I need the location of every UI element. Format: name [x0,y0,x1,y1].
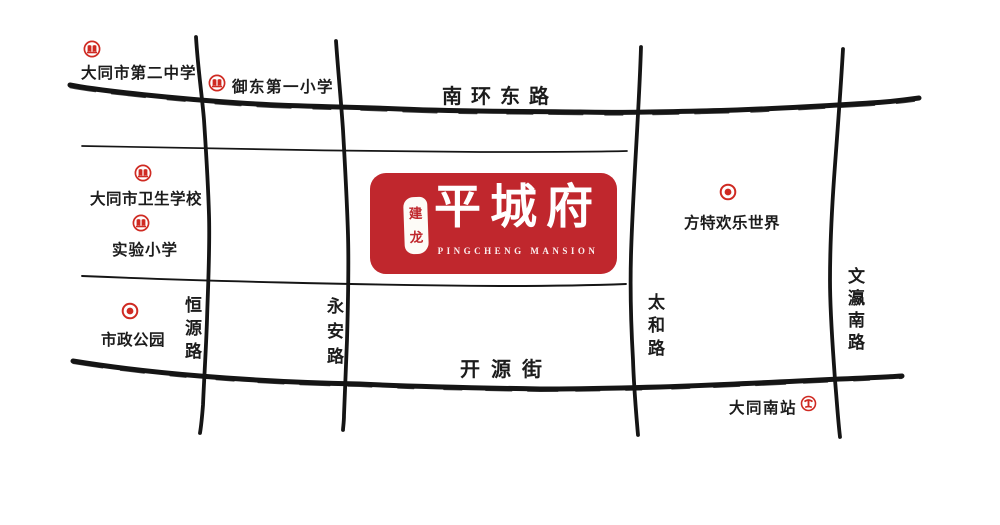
minor-road-upper [82,146,627,152]
railway-icon [800,395,817,412]
road-label-yongan: 永安路 [321,297,346,372]
road-label-wenying-south: 文瀛南路 [842,267,867,355]
road-taihe [631,47,641,435]
location-map: 南环东路 开源街 恒源路 永安路 太和路 文瀛南路 大同市第二中学 御东第一小学… [0,0,1000,525]
landmark-label: 大同市卫生学校 [90,187,202,209]
landmark-label: 大同市第二中学 [81,61,197,83]
attraction-icon [719,183,737,201]
school-icon [208,74,226,92]
road-label-nanhuan-east: 南环东路 [442,80,558,109]
seal-char-top: 建 [409,207,423,221]
school-icon [132,214,150,232]
landmark-label: 御东第一小学 [232,75,334,97]
landmark-label: 大同南站 [729,396,797,418]
landmark-label: 市政公园 [101,328,165,350]
road-label-kaiyuan-street: 开源街 [460,353,553,382]
road-label-taihe: 太和路 [642,293,667,362]
landmark-label: 方特欢乐世界 [684,211,780,233]
road-label-hengyuan: 恒源路 [179,296,204,365]
school-icon [134,164,152,182]
landmark-label: 实验小学 [112,238,178,260]
project-name: 平城府 [434,181,602,235]
seal-char-bottom: 龙 [409,230,423,244]
project-subtitle: PINGCHENG MANSION [432,246,604,256]
developer-seal: 建 龙 [403,197,429,255]
park-icon [121,302,139,320]
logo-card: 建 龙 平城府 PINGCHENG MANSION [370,173,617,274]
school-icon [83,40,101,58]
minor-road-lower [82,276,626,286]
